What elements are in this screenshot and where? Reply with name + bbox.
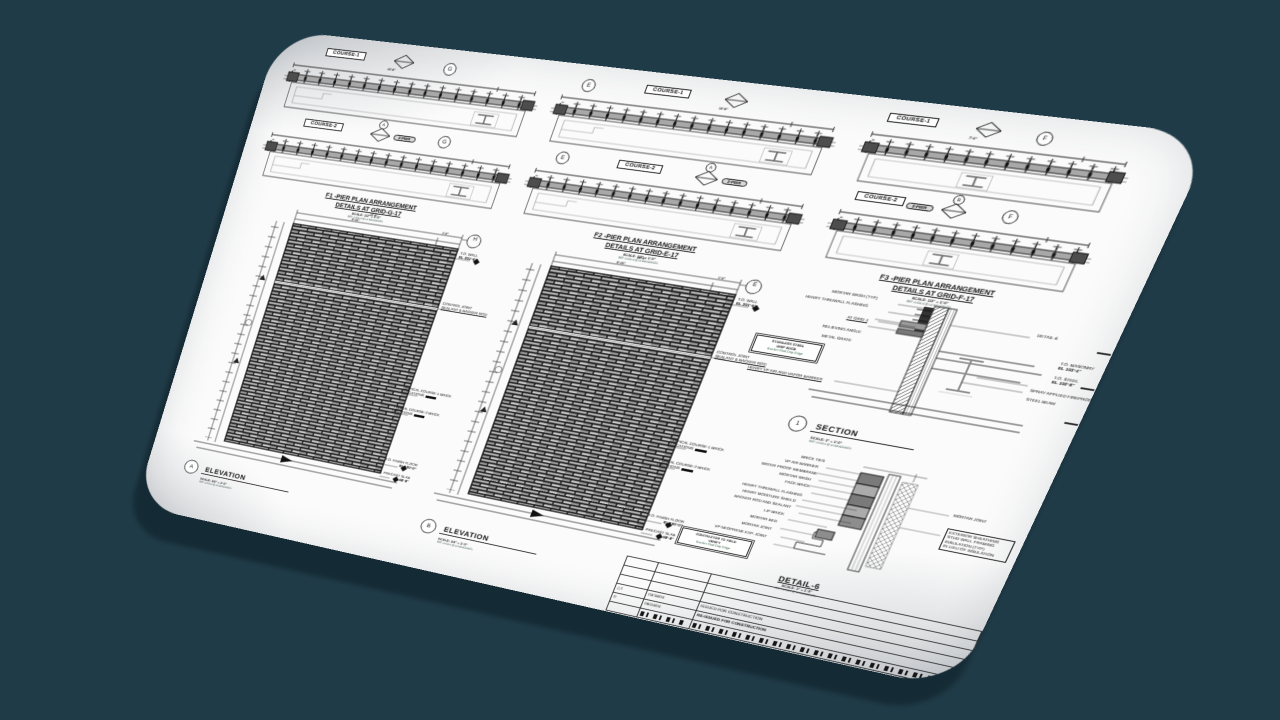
course1-label-box: COURSE-1 — [644, 85, 692, 99]
detail-diamond-icon — [367, 126, 393, 143]
view-bubble: 1 — [786, 414, 810, 433]
pier-tag: 2-PIER — [721, 178, 748, 187]
callout-to-masonry: T.O. MASONRYEL 103'-4" — [1057, 361, 1095, 376]
brick-swatch — [425, 395, 436, 399]
course2-label-box: COURSE-2 — [854, 191, 906, 206]
detail-diamond-icon — [692, 169, 722, 188]
pier-tag: 2-PIER — [393, 134, 416, 142]
callout-to-steel: T.O. STEELEL 102'-8" — [1051, 375, 1080, 388]
course1-label-box: COURSE-1 — [887, 113, 940, 128]
grid-bubble: G — [436, 135, 452, 149]
view-bubble: A — [183, 459, 201, 475]
detail-diamond-icon — [937, 201, 970, 221]
grid-bubble: E — [580, 78, 598, 92]
course2-label-box: COURSE-2 — [303, 119, 344, 132]
plan-dim-total: 7'-0" — [968, 136, 978, 141]
course1-label-box: COURSE-1 — [325, 48, 367, 61]
view-bubble: B — [419, 518, 439, 535]
grid-bubble: F — [1000, 209, 1022, 225]
section-note-box: STAINLESS STEEL DRIP EDGE Backer Rod Dri… — [750, 334, 822, 362]
course2-label-box: COURSE-2 — [616, 160, 663, 174]
grid-bubble: F — [1034, 131, 1056, 147]
background: COURSE-1 10'-8" G COURSE-2 A 2-PIER G F1… — [0, 0, 1280, 720]
pier-tag: 2-PIER — [905, 202, 934, 212]
brick-swatch — [413, 414, 424, 418]
grid-bubble: E — [554, 151, 571, 165]
grid-bubble: G — [442, 62, 459, 76]
drawing-sheet: COURSE-1 10'-8" G COURSE-2 A 2-PIER G F1… — [135, 30, 1215, 690]
